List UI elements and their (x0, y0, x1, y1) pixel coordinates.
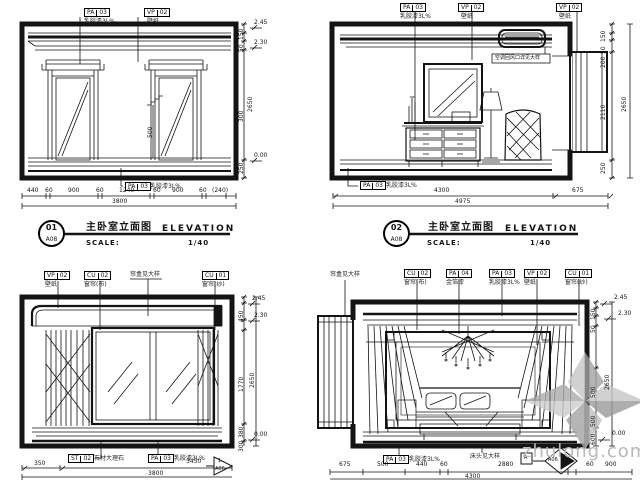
tag-system: ST (69, 456, 80, 462)
material-tag: PA03 (400, 3, 426, 12)
dim-label: 150 (239, 29, 245, 40)
dim-label: 350 (34, 461, 45, 467)
dim-label: 900 (605, 462, 616, 468)
tag-number: 03 (96, 10, 109, 16)
tag-number: 02 (537, 271, 550, 277)
tag-note: 壁纸 (524, 280, 536, 286)
material-tag: VP02 (556, 3, 582, 12)
tag-note: 窗帘(纱) (565, 280, 588, 286)
dim-label: 2650 (605, 375, 611, 390)
tag-system: VP (45, 273, 57, 279)
view-title-en: ELEVATION (505, 225, 578, 234)
view-number: 01 (40, 224, 63, 232)
dim-label: 60 (586, 462, 594, 468)
tag-system: PA (85, 10, 96, 16)
dim-label: 60 (199, 188, 207, 194)
tag-system: VP (459, 5, 471, 11)
level-mark: 2.30 (618, 311, 631, 317)
sheet-ref: A08 (40, 237, 63, 243)
dim-label: 4300 (434, 188, 449, 194)
dim-label: 60 (96, 188, 104, 194)
view-number: 02 (385, 224, 408, 232)
tag-number: 03 (137, 184, 150, 190)
dim-label: 675 (339, 462, 350, 468)
tag-note: 乳胶漆3L% (489, 280, 520, 286)
tag-number: 01 (216, 273, 229, 279)
material-tag: CU02 (84, 271, 111, 280)
dim-label: 200 (601, 57, 607, 68)
tag-note: 窗帘(纱) (202, 282, 225, 288)
level-mark: 2.45 (254, 20, 267, 26)
tag-number: 03 (372, 183, 385, 189)
scale-label: SCALE: (427, 240, 461, 247)
tag-system: PA (149, 456, 160, 462)
dim-label: 300 (239, 111, 245, 122)
tag-note: 壁纸 (147, 19, 159, 25)
view-title-cn: 主卧室立面图 (428, 223, 494, 233)
dim-label: 300 (239, 441, 245, 452)
tag-number: 02 (98, 273, 111, 279)
tag-system: PA (447, 271, 458, 277)
dim-label: 60 (440, 462, 448, 468)
tag-system: VP (525, 271, 537, 277)
tag-number: 04 (458, 271, 471, 277)
tag-note: 乳胶漆3L% (400, 14, 431, 20)
dim-label: 60 (153, 188, 161, 194)
material-tag: PA03 (360, 181, 386, 190)
v3-line-art (22, 279, 260, 480)
level-mark: 2.45 (614, 295, 627, 301)
section-marker-number: 1 (218, 459, 221, 464)
material-tag: PA03 (148, 454, 174, 463)
tag-note: 壁纸 (461, 14, 473, 20)
detail-note: 帘盒见大样 (130, 272, 160, 278)
tag-system: CU (405, 271, 418, 277)
tag-number: 02 (80, 456, 93, 462)
dim-label: 2650 (622, 97, 628, 112)
view-title-en: ELEVATION (162, 225, 235, 234)
material-tag: ST02 (68, 454, 94, 463)
detail-note: 床头见大样 (470, 454, 500, 460)
dim-label: 2650 (250, 373, 256, 388)
tag-system: VP (557, 5, 569, 11)
v2-line-art (332, 12, 633, 234)
view-number-bubble: 01 A08 (38, 220, 65, 247)
dim-label: 2880 (498, 462, 513, 468)
tag-note: 金箔漆 (446, 280, 464, 286)
detail-note: 帘盒见大样 (330, 272, 360, 278)
material-tag: PA03 (489, 269, 515, 278)
tag-number: 03 (412, 5, 425, 11)
dim-total: 3800 (112, 199, 127, 205)
dim-label: 900 (68, 188, 79, 194)
material-tag: VP02 (144, 8, 170, 17)
tag-system: CU (203, 273, 216, 279)
dim-label: 500 (148, 127, 154, 138)
tag-system: PA (490, 271, 501, 277)
level-mark: 0.00 (612, 431, 625, 437)
dim-label: 250 (601, 163, 607, 174)
tag-number: 02 (57, 273, 70, 279)
dim-label: 50 (601, 46, 607, 54)
material-tag: VP02 (458, 3, 484, 12)
tag-note: 壁纸 (559, 14, 571, 20)
dim-label: 500 (591, 416, 597, 427)
material-tag: PA04 (446, 269, 472, 278)
tag-system: CU (566, 271, 579, 277)
tag-note: 壁纸 (45, 282, 57, 288)
level-mark: 2.45 (252, 296, 265, 302)
dim-label: 250 (239, 163, 245, 174)
material-tag: VP02 (44, 271, 70, 280)
dim-label: 500 (377, 462, 388, 468)
tag-note: 乳胶漆3L% (84, 19, 115, 25)
v1-line-art (22, 17, 262, 234)
tag-note: 石材大理石 (94, 456, 124, 462)
dim-label: 450 (239, 311, 245, 322)
tag-system: PA (401, 5, 412, 11)
dim-label: 440 (416, 462, 427, 468)
ac-return-note: 空调回风口详见大样 (495, 56, 540, 61)
tag-note: 乳胶漆3L% (386, 183, 417, 189)
scale-label: SCALE: (86, 240, 120, 247)
dim-label: 2110 (601, 105, 607, 120)
scale-value: 1/40 (188, 240, 209, 247)
dim-label: 1240 (119, 188, 134, 194)
tag-number: 02 (157, 10, 170, 16)
view-number-bubble: 02 A08 (383, 220, 410, 247)
dim-label: 50 (239, 44, 245, 52)
tag-number: 03 (395, 457, 408, 463)
tag-note: 窗帘(布) (84, 282, 107, 288)
tag-note: 窗帘(布) (404, 280, 427, 286)
tag-number: 01 (579, 271, 592, 277)
dim-total: 4300 (465, 474, 480, 480)
dim-label: 50 (591, 325, 597, 333)
watermark-site: zhulong.com (522, 441, 640, 462)
tag-system: CU (85, 273, 98, 279)
material-tag: PA03 (84, 8, 110, 17)
dim-label: (240) (212, 188, 228, 194)
dim-total: 3800 (148, 471, 163, 477)
section-marker-sheet: A06 (215, 467, 225, 472)
tag-number: 02 (471, 5, 484, 11)
tag-number: 02 (569, 5, 582, 11)
sheet-ref: A08 (385, 237, 408, 243)
dim-label: 150 (591, 309, 597, 320)
level-mark: 0.00 (254, 432, 267, 438)
dim-label: 675 (572, 188, 583, 194)
level-mark: 2.30 (254, 313, 267, 319)
tag-system: VP (145, 10, 157, 16)
scale-value: 1/40 (530, 240, 551, 247)
dim-label: 1770 (239, 377, 245, 392)
view-title-cn: 主卧室立面图 (86, 223, 152, 233)
dim-label: 2650 (248, 97, 254, 112)
material-tag: CU01 (565, 269, 592, 278)
level-mark: 0.00 (254, 153, 267, 159)
dim-label: 150 (601, 31, 607, 42)
tag-system: PA (361, 183, 372, 189)
dim-label: 380 (239, 427, 245, 438)
dim-label: 3450 (186, 459, 201, 465)
level-mark: 2.30 (254, 40, 267, 46)
dim-label: 440 (27, 188, 38, 194)
dim-label: 60 (45, 188, 53, 194)
cad-sheet: { "watermark": { "site": "zhulong.com" }… (0, 0, 640, 480)
material-tag: VP02 (524, 269, 550, 278)
tag-number: 03 (501, 271, 514, 277)
dim-total: 4975 (455, 199, 470, 205)
material-tag: CU02 (404, 269, 431, 278)
dim-label: 900 (172, 188, 183, 194)
tag-number: 02 (418, 271, 431, 277)
tag-number: 03 (160, 456, 173, 462)
material-tag: CU01 (202, 271, 229, 280)
dim-label: 500 (591, 387, 597, 398)
